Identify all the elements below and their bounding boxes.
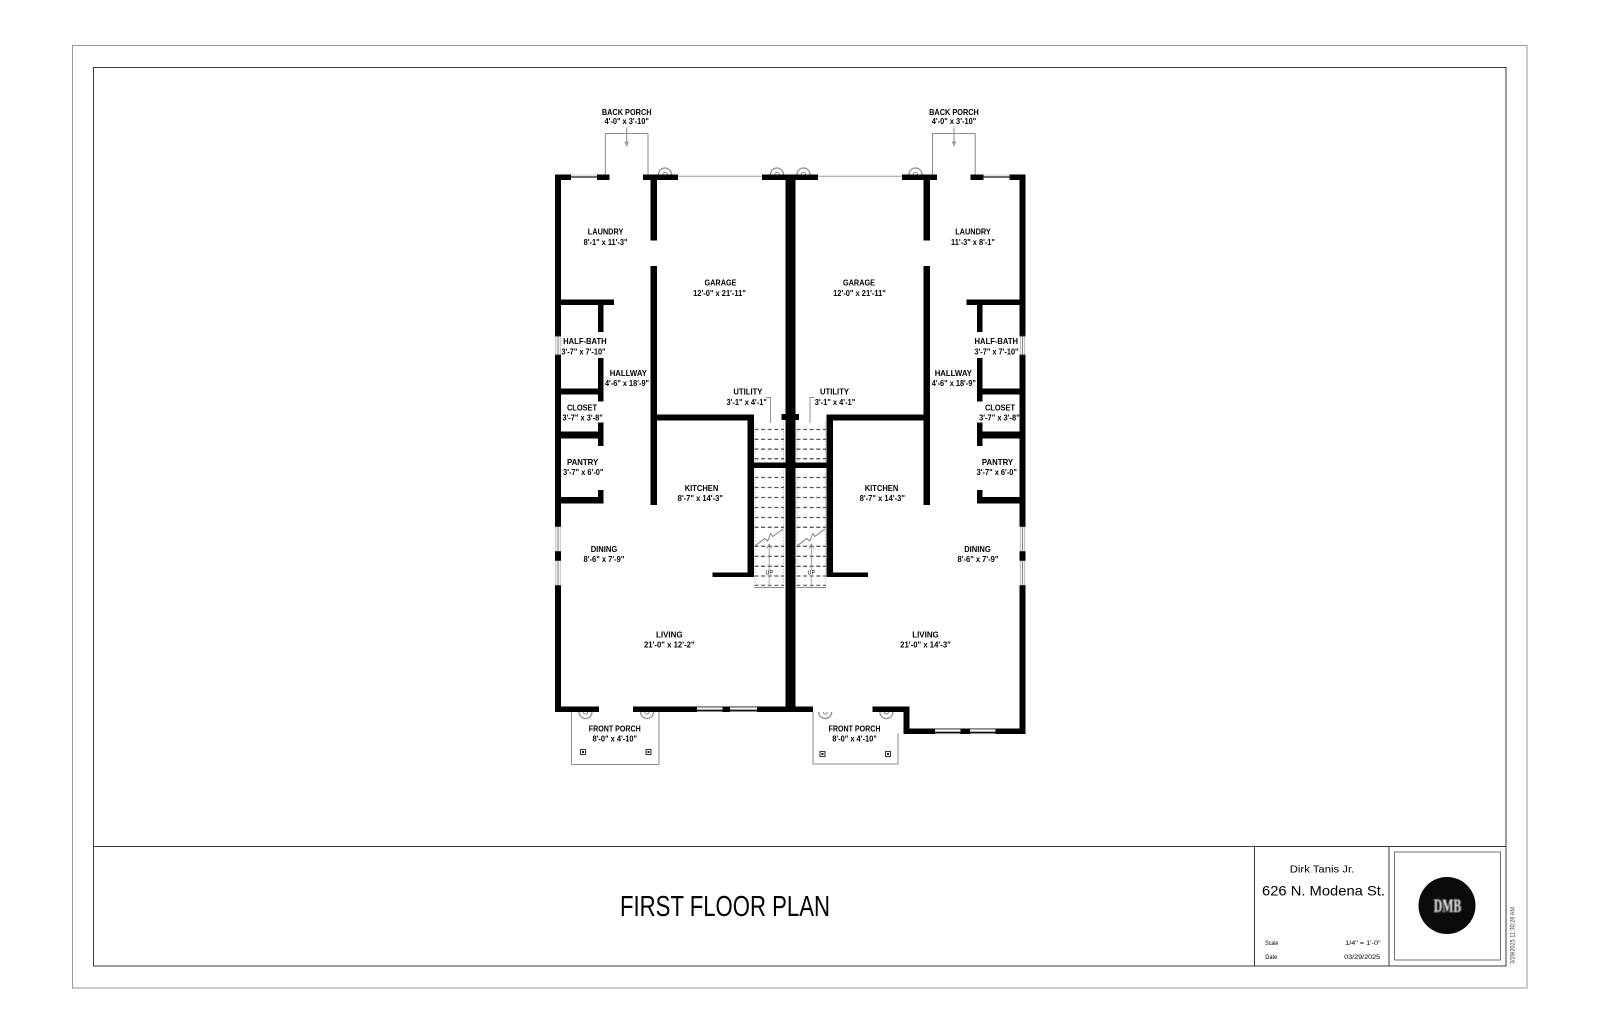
svg-text:KITCHEN: KITCHEN: [865, 483, 899, 493]
svg-text:03/29/2025: 03/29/2025: [1344, 954, 1381, 961]
svg-text:FRONT PORCH: FRONT PORCH: [829, 723, 881, 733]
svg-text:4'-6" x 18'-9": 4'-6" x 18'-9": [932, 378, 976, 388]
svg-text:LAUNDRY: LAUNDRY: [955, 227, 991, 237]
svg-text:HALLWAY: HALLWAY: [610, 368, 647, 378]
svg-text:FRONT PORCH: FRONT PORCH: [589, 723, 641, 733]
svg-text:HALLWAY: HALLWAY: [935, 368, 972, 378]
svg-text:HALF-BATH: HALF-BATH: [975, 336, 1019, 346]
svg-text:UP: UP: [765, 569, 773, 576]
svg-text:Scale: Scale: [1265, 940, 1278, 947]
svg-text:PANTRY: PANTRY: [982, 457, 1014, 467]
svg-text:UTILITY: UTILITY: [733, 387, 762, 397]
svg-text:3'-1" x 4'-1": 3'-1" x 4'-1": [726, 397, 767, 407]
svg-text:CLOSET: CLOSET: [985, 403, 1016, 413]
svg-text:DMB: DMB: [1434, 896, 1462, 917]
svg-text:8'-0" x 4'-10": 8'-0" x 4'-10": [832, 734, 877, 744]
svg-text:LIVING: LIVING: [656, 629, 683, 639]
svg-text:21'-0" x 12'-2": 21'-0" x 12'-2": [644, 640, 695, 650]
svg-text:8'-6" x 7'-9": 8'-6" x 7'-9": [958, 554, 999, 564]
svg-text:LAUNDRY: LAUNDRY: [588, 227, 624, 237]
svg-text:1/4" = 1'-0": 1/4" = 1'-0": [1345, 940, 1381, 947]
svg-text:DINING: DINING: [964, 544, 991, 554]
svg-text:12'-0" x 21'-11": 12'-0" x 21'-11": [693, 288, 746, 298]
svg-text:3'-7" x 7'-10": 3'-7" x 7'-10": [561, 346, 605, 356]
svg-text:Date: Date: [1265, 954, 1277, 961]
svg-text:21'-0" x 14'-3": 21'-0" x 14'-3": [900, 640, 951, 650]
svg-text:11'-3" x 8'-1": 11'-3" x 8'-1": [951, 237, 995, 247]
svg-text:3'-7" x 6'-0": 3'-7" x 6'-0": [563, 467, 603, 477]
svg-text:DINING: DINING: [591, 544, 618, 554]
svg-text:HALF-BATH: HALF-BATH: [563, 336, 607, 346]
svg-text:3'-7" x 3'-8": 3'-7" x 3'-8": [562, 413, 603, 423]
svg-text:3/29/2025 11:30:26 AM: 3/29/2025 11:30:26 AM: [1510, 907, 1517, 964]
svg-text:8'-7" x 14'-3": 8'-7" x 14'-3": [860, 493, 905, 503]
svg-text:626 N. Modena St.: 626 N. Modena St.: [1262, 883, 1385, 899]
svg-text:KITCHEN: KITCHEN: [685, 483, 719, 493]
svg-text:Dirk Tanis Jr.: Dirk Tanis Jr.: [1290, 864, 1355, 876]
svg-text:12'-0" x 21'-11": 12'-0" x 21'-11": [833, 288, 886, 298]
svg-text:LIVING: LIVING: [912, 629, 939, 639]
svg-text:UP: UP: [808, 569, 816, 576]
svg-text:8'-0" x 4'-10": 8'-0" x 4'-10": [593, 734, 638, 744]
svg-text:4'-0" x 3'-10": 4'-0" x 3'-10": [932, 116, 977, 126]
svg-text:CLOSET: CLOSET: [567, 403, 598, 413]
svg-text:3'-7" x 6'-0": 3'-7" x 6'-0": [977, 467, 1017, 477]
svg-text:3'-7" x 7'-10": 3'-7" x 7'-10": [974, 346, 1018, 356]
svg-text:UTILITY: UTILITY: [820, 387, 849, 397]
svg-text:GARAGE: GARAGE: [705, 278, 737, 288]
svg-text:8'-7" x 14'-3": 8'-7" x 14'-3": [678, 493, 723, 503]
svg-text:8'-1" x 11'-3": 8'-1" x 11'-3": [584, 237, 628, 247]
svg-text:4'-6" x 18'-9": 4'-6" x 18'-9": [605, 378, 649, 388]
svg-text:4'-0" x 3'-10": 4'-0" x 3'-10": [604, 116, 649, 126]
svg-text:FIRST FLOOR PLAN: FIRST FLOOR PLAN: [620, 891, 830, 923]
svg-text:3'-1" x 4'-1": 3'-1" x 4'-1": [815, 397, 856, 407]
svg-text:PANTRY: PANTRY: [567, 457, 599, 467]
svg-text:GARAGE: GARAGE: [843, 278, 875, 288]
svg-text:8'-6" x 7'-9": 8'-6" x 7'-9": [584, 554, 625, 564]
svg-text:3'-7" x 3'-8": 3'-7" x 3'-8": [979, 413, 1020, 423]
